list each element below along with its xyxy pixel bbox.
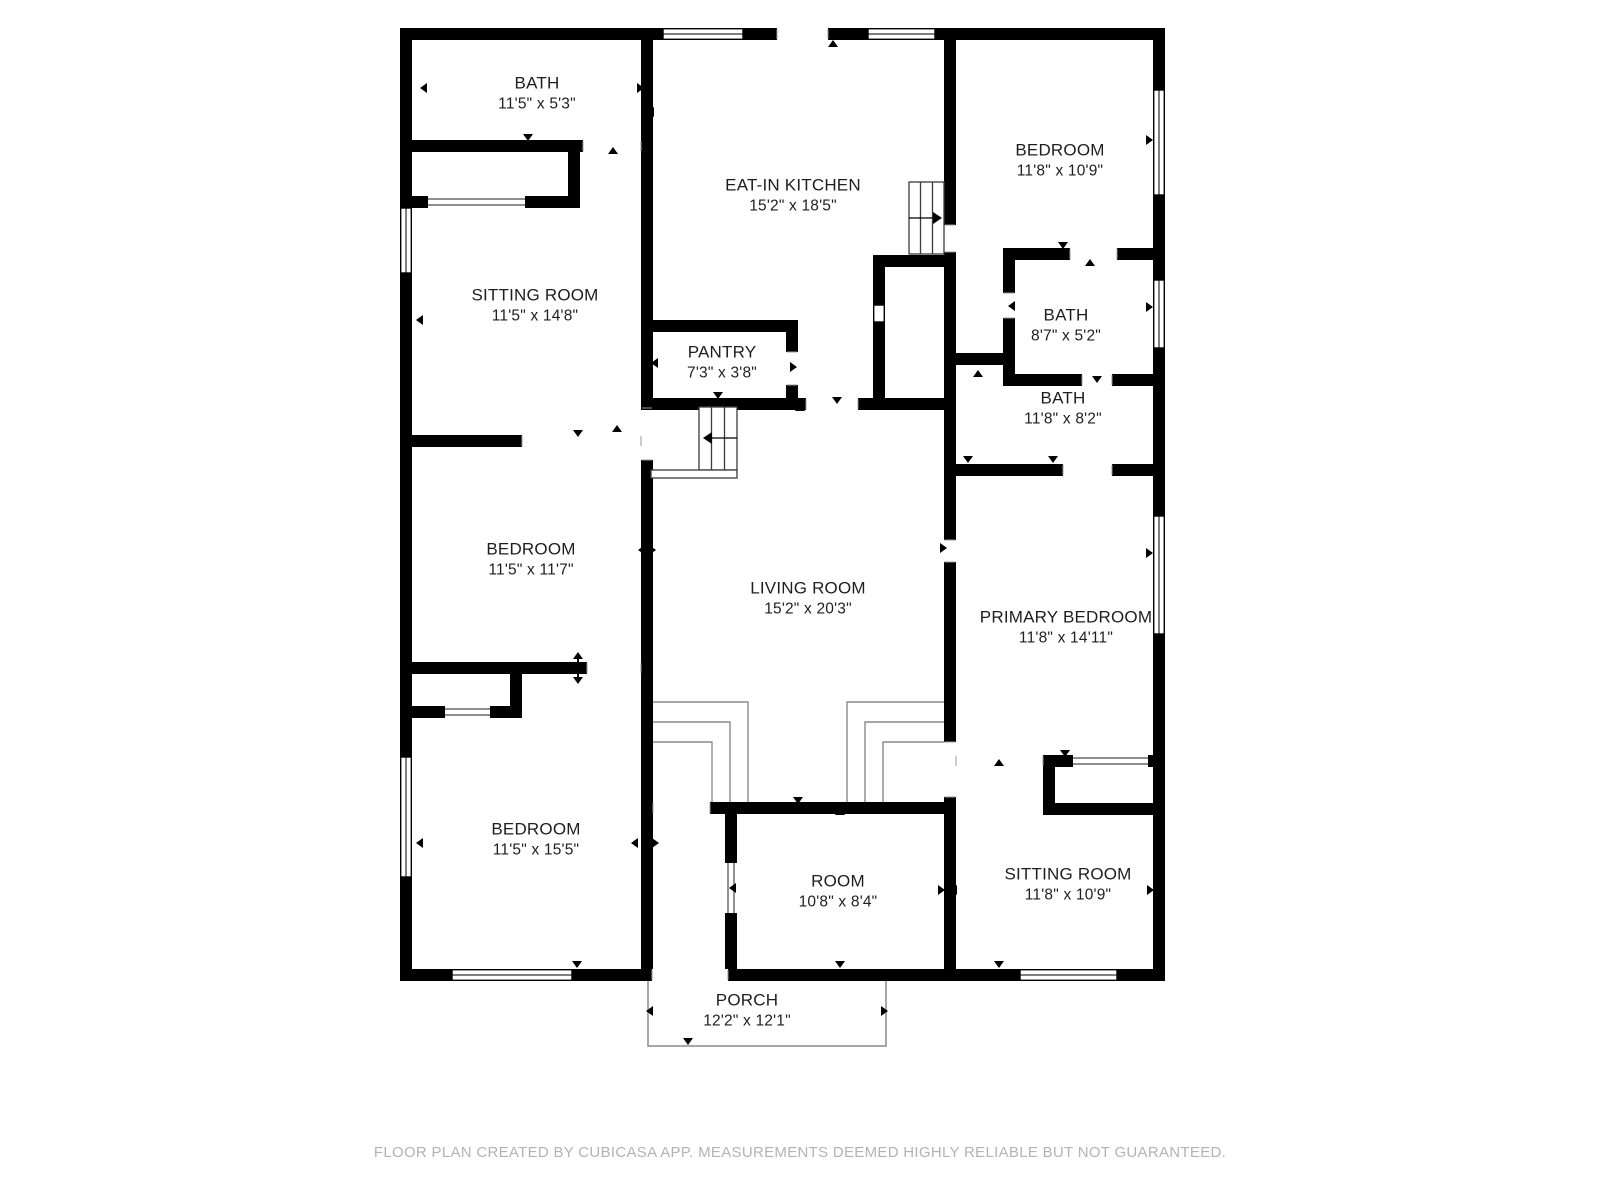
door-swing-arrows bbox=[416, 40, 1154, 1045]
windows bbox=[401, 29, 1165, 981]
floor-plan-canvas: BATH11'5" x 5'3"EAT-IN KITCHEN15'2" x 18… bbox=[0, 0, 1600, 1200]
footer-disclaimer: FLOOR PLAN CREATED BY CUBICASA APP. MEAS… bbox=[0, 1144, 1600, 1161]
porch-outline bbox=[648, 981, 886, 1046]
stairs-upper bbox=[909, 182, 944, 254]
door-openings bbox=[522, 29, 1117, 980]
fireplace-nooks bbox=[653, 702, 944, 802]
floor-plan-drawing bbox=[0, 0, 1600, 1200]
walls bbox=[400, 28, 1165, 981]
stairs-lower bbox=[651, 407, 737, 478]
